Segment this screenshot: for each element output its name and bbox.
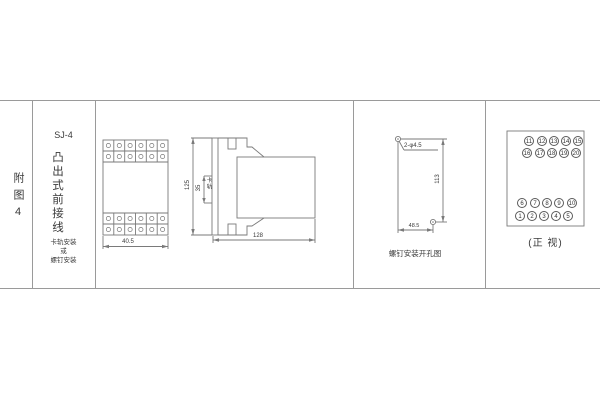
frame-divider-4	[485, 100, 486, 288]
front-panel-caption: (正 视)	[507, 234, 584, 249]
front-view-drawing	[103, 140, 168, 249]
drill-horizontal-dimension: 48.5	[402, 223, 426, 229]
drawing-sheet: 附图4 SJ-4 凸出式前接线 卡轨安装 或 螺钉安装	[0, 0, 600, 400]
side-view-drawing	[191, 138, 315, 243]
terminal-number: 13	[549, 136, 559, 146]
rail-span-dimension: 35	[196, 180, 202, 196]
terminal-number: 19	[559, 148, 569, 158]
front-width-dimension: 40.5	[114, 239, 142, 245]
terminal-number: 10	[567, 198, 577, 208]
holes-spec-label: 2-φ4.5	[404, 143, 422, 149]
frame-bottom-line	[0, 288, 600, 289]
terminal-number: 6	[517, 198, 527, 208]
terminal-number: 2	[527, 211, 537, 221]
side-depth-dimension: 128	[246, 233, 270, 239]
terminal-number: 1	[515, 211, 525, 221]
rail-label: 卡轨	[205, 177, 213, 190]
terminal-number: 3	[539, 211, 549, 221]
terminal-number: 18	[547, 148, 557, 158]
terminal-number: 16	[522, 148, 532, 158]
mounting-note-line-1: 卡轨安装	[32, 238, 95, 247]
side-height-dimension: 125	[185, 175, 191, 195]
terminal-number: 9	[554, 198, 564, 208]
terminal-number: 7	[530, 198, 540, 208]
terminal-number: 4	[551, 211, 561, 221]
mounting-note-line-2: 或	[32, 247, 95, 256]
frame-divider-3	[353, 100, 354, 288]
terminal-screw-cells	[106, 140, 164, 235]
terminal-number: 17	[535, 148, 545, 158]
relay-type-label: 凸出式前接线	[49, 151, 65, 235]
mounting-note-line-3: 螺钉安装	[32, 256, 95, 265]
drill-diagram-caption: 螺钉安装开孔图	[375, 248, 455, 259]
drill-vertical-dimension: 113	[435, 169, 441, 189]
frame-divider-2	[95, 100, 96, 288]
terminal-number: 8	[542, 198, 552, 208]
terminal-number: 12	[537, 136, 547, 146]
terminal-number: 14	[561, 136, 571, 146]
figure-number-label: 附图4	[10, 172, 26, 224]
frame-top-line	[0, 100, 600, 101]
terminal-number: 5	[563, 211, 573, 221]
terminal-number: 20	[571, 148, 581, 158]
drawing-linework	[0, 0, 600, 400]
terminal-number: 15	[573, 136, 583, 146]
model-label: SJ-4	[32, 130, 95, 140]
terminal-number: 11	[524, 136, 534, 146]
